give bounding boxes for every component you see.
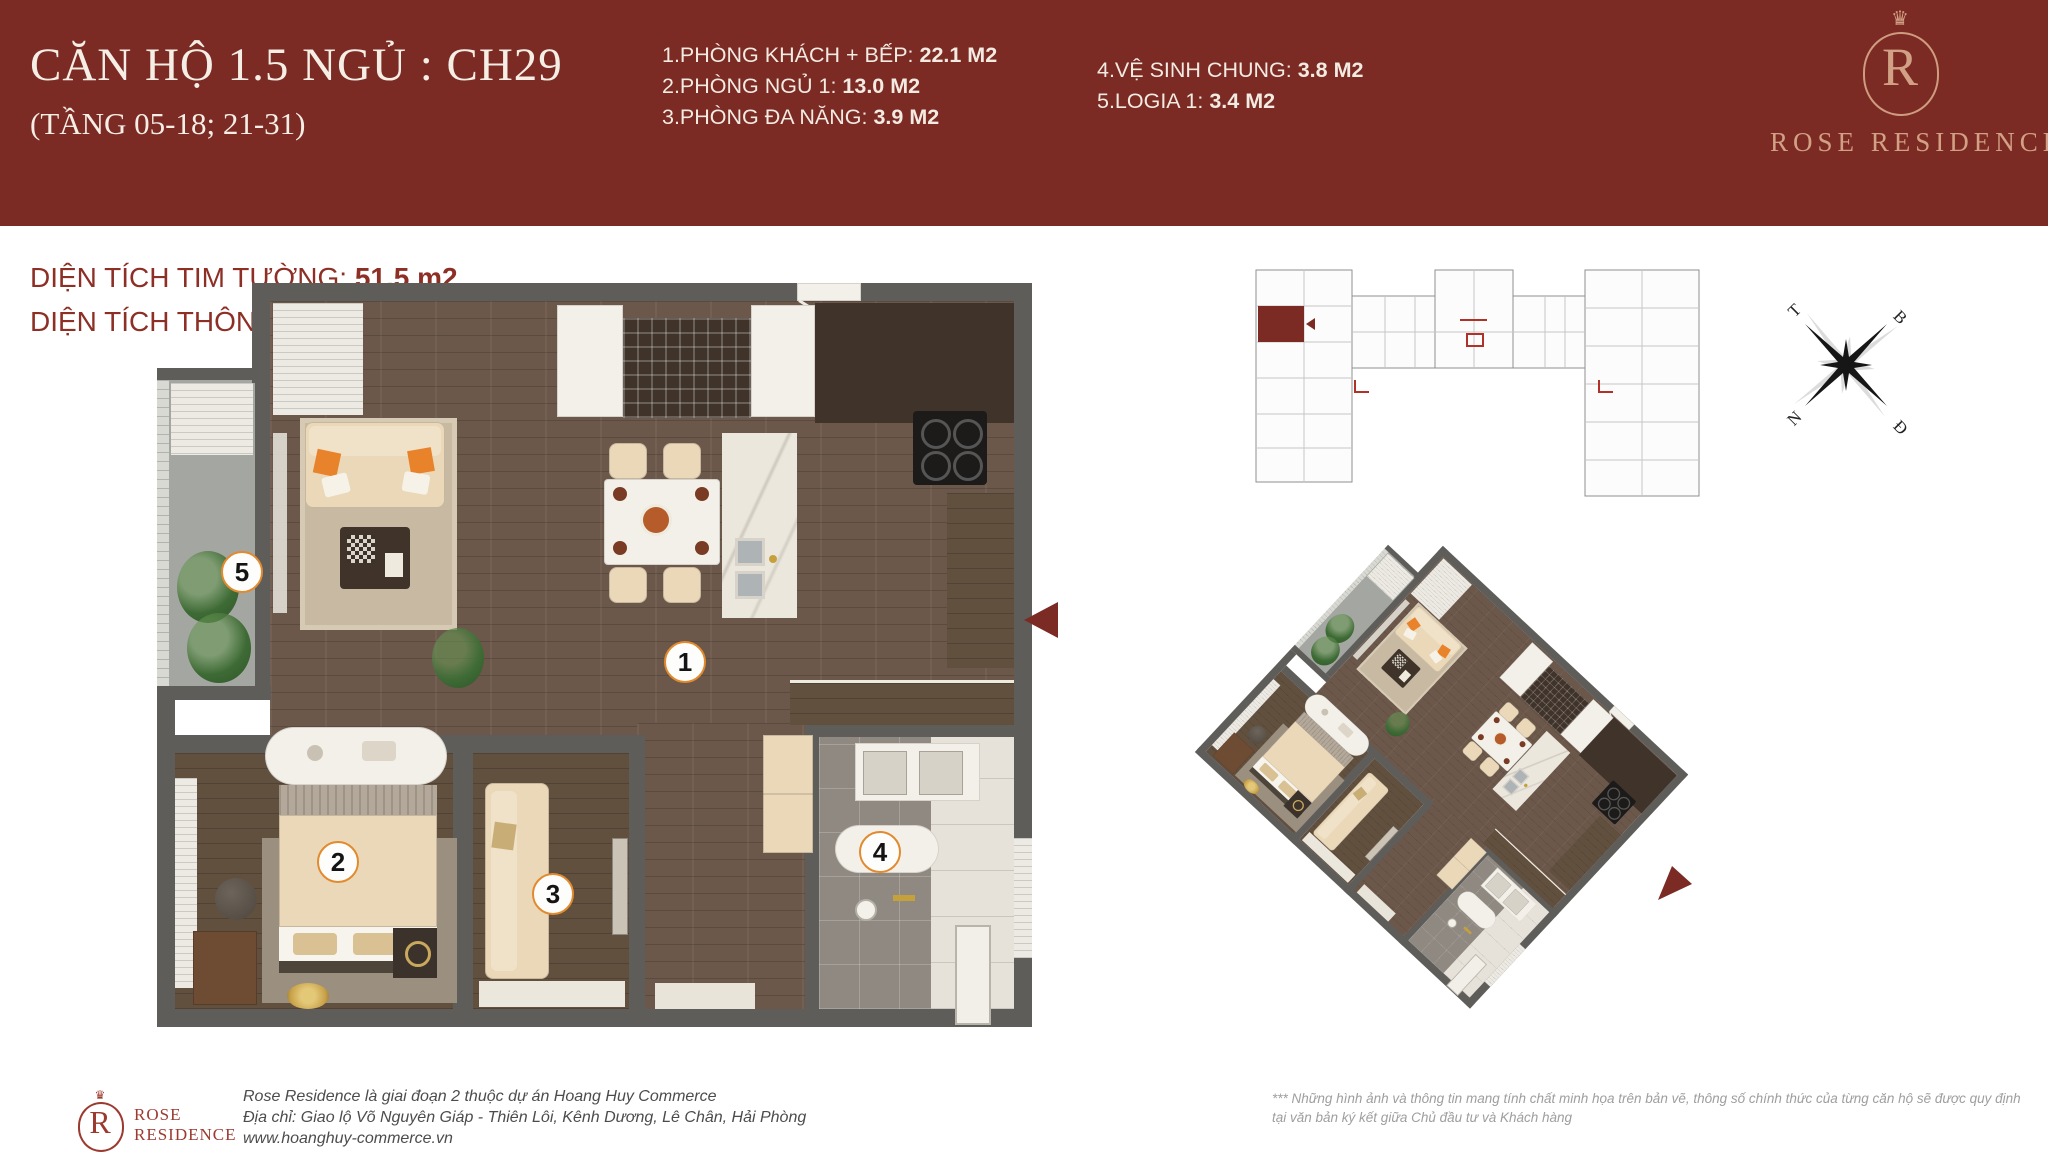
brand-logo: ♛ R ROSE RESIDENCE xyxy=(1770,14,2030,158)
wall-top xyxy=(252,283,1032,301)
monogram-letter: R xyxy=(1857,36,1943,98)
compass-rose: T B N Đ xyxy=(1780,285,1940,460)
room-area-value: 3.4 M2 xyxy=(1209,89,1275,113)
footer-logo: ♛ R xyxy=(76,1092,128,1150)
compass-star-icon xyxy=(1805,324,1887,406)
room-label: 1.PHÒNG KHÁCH + BẾP: xyxy=(662,43,919,67)
burner-1 xyxy=(921,419,951,449)
compass-label-south: N xyxy=(1783,407,1805,429)
monogram-letter: R xyxy=(76,1104,124,1141)
main-floorplan-inner: 1 2 3 4 5 xyxy=(157,283,1032,1040)
address-line-1: Rose Residence là giai đoạn 2 thuộc dự á… xyxy=(243,1086,806,1107)
building-keyplan xyxy=(1255,268,1700,498)
wall-left-lower xyxy=(157,700,175,1020)
bed-pillow-1 xyxy=(293,933,337,955)
plant-logia-2 xyxy=(187,613,251,683)
pouf xyxy=(215,878,257,920)
plate-2 xyxy=(695,487,709,501)
burner-4 xyxy=(953,451,983,481)
hall-cabinet xyxy=(763,735,813,853)
header-band: CĂN HỘ 1.5 NGỦ : CH29 (TẦNG 05-18; 21-31… xyxy=(0,0,2048,226)
sofa-pillow-orange-1 xyxy=(313,449,341,477)
brochure-page: CĂN HỘ 1.5 NGỦ : CH29 (TẦNG 05-18; 21-31… xyxy=(0,0,2048,1152)
room-number-3: 3 xyxy=(532,873,574,915)
plant-living xyxy=(432,628,484,688)
vanity-sink-2 xyxy=(919,751,963,795)
headboard xyxy=(279,785,437,815)
room-list-col1: 1.PHÒNG KHÁCH + BẾP: 22.1 M2 2.PHÒNG NGỦ… xyxy=(662,40,997,133)
compass-label-west: T xyxy=(1784,300,1805,321)
plate-3 xyxy=(613,541,627,555)
bath-niche xyxy=(955,925,991,1025)
dresser-decor-1 xyxy=(307,745,323,761)
room-number-2: 2 xyxy=(317,841,359,883)
kitchen-peninsula xyxy=(790,683,1014,725)
room-number-1: 1 xyxy=(664,641,706,683)
bedside-cabinet xyxy=(193,931,257,1005)
vanity-sink-1 xyxy=(863,751,907,795)
wine-rack xyxy=(623,318,751,418)
room-number-5: 5 xyxy=(221,551,263,593)
room-area-value: 13.0 M2 xyxy=(842,74,920,98)
disclaimer-line-2: tại văn bản ký kết giữa Chủ đầu tư và Kh… xyxy=(1272,1108,2021,1127)
logia-wall-inner xyxy=(255,380,270,686)
sink-basin-2 xyxy=(735,571,765,599)
sofa-pillow-white-2 xyxy=(401,471,430,495)
burner-3 xyxy=(921,451,951,481)
brand-monogram: ♛ R xyxy=(1857,14,1943,118)
sofa-pillow-orange-2 xyxy=(407,447,435,475)
page-title: CĂN HỘ 1.5 NGỦ : CH29 xyxy=(30,38,563,92)
room-line-3: 3.PHÒNG ĐA NĂNG: 3.9 M2 xyxy=(662,102,997,133)
room-label: 4.VỆ SINH CHUNG: xyxy=(1097,58,1298,82)
room-area-value: 22.1 M2 xyxy=(919,43,997,67)
cabinet-white-top xyxy=(557,305,623,417)
room-line-5: 5.LOGIA 1: 3.4 M2 xyxy=(1097,86,1363,117)
chessboard xyxy=(347,535,375,563)
sink-basin-1 xyxy=(735,538,765,566)
main-floorplan: 1 2 3 4 5 xyxy=(157,283,1032,1040)
footer-brand-name: ROSE RESIDENCE xyxy=(134,1105,237,1145)
disclaimer-line-1: *** Những hình ảnh và thông tin mang tín… xyxy=(1272,1089,2021,1108)
crown-icon: ♛ xyxy=(1857,6,1943,31)
address-line-3: www.hoanghuy-commerce.vn xyxy=(243,1128,806,1149)
room-label: 5.LOGIA 1: xyxy=(1097,89,1209,113)
wall-bottom xyxy=(157,1009,1032,1027)
fridge xyxy=(751,305,815,417)
unit-arrow-main xyxy=(1022,600,1060,642)
logia-wall-bottom xyxy=(157,686,271,700)
chair-2 xyxy=(663,443,701,479)
faucet xyxy=(769,555,777,563)
chair-1 xyxy=(609,443,647,479)
footer-brand-line1: ROSE xyxy=(134,1105,237,1125)
logia-railing xyxy=(157,380,169,686)
main-floorplan-inner: 1 2 3 4 5 xyxy=(1191,518,1688,1013)
platter xyxy=(643,507,669,533)
compass-label-north: B xyxy=(1890,306,1911,327)
room-line-4: 4.VỆ SINH CHUNG: 3.8 M2 xyxy=(1097,55,1363,86)
room-line-2: 2.PHÒNG NGỦ 1: 13.0 M2 xyxy=(662,71,997,102)
highlighted-unit xyxy=(1258,306,1304,342)
unit-arrow-rotated xyxy=(1652,862,1700,906)
counter-right-wood xyxy=(947,493,1014,668)
room-label: 2.PHÒNG NGỦ 1: xyxy=(662,74,842,98)
room-list-col2: 4.VỆ SINH CHUNG: 3.8 M2 5.LOGIA 1: 3.4 M… xyxy=(1097,55,1363,117)
bed-pillow-2 xyxy=(353,933,397,955)
wall-multi-hall xyxy=(629,735,645,1027)
paper-roll xyxy=(857,901,875,919)
wall-bath-top xyxy=(805,723,1032,737)
logia-shelf xyxy=(171,383,253,455)
brand-name: ROSE RESIDENCE xyxy=(1770,127,2030,158)
burner-2 xyxy=(953,419,983,449)
address-line-2: Địa chỉ: Giao lộ Võ Nguyên Giáp - Thiên … xyxy=(243,1107,806,1128)
arrow-downleft-icon xyxy=(1658,866,1692,900)
chest-ring xyxy=(405,941,431,967)
bedroom-dresser xyxy=(265,727,447,785)
plate-4 xyxy=(695,541,709,555)
room-area-value: 3.9 M2 xyxy=(873,105,939,129)
crown-icon: ♛ xyxy=(76,1088,124,1102)
footer-address: Rose Residence là giai đoạn 2 thuộc dự á… xyxy=(243,1086,806,1149)
plate-1 xyxy=(613,487,627,501)
wall-frame xyxy=(612,838,628,935)
sunburst-decor xyxy=(287,983,329,1009)
footer-disclaimer: *** Những hình ảnh và thông tin mang tín… xyxy=(1272,1089,2021,1127)
rotated-floorplan: 1 2 3 4 5 xyxy=(1191,518,1688,1013)
closet-top-left xyxy=(273,303,363,415)
floor-range: (TẦNG 05-18; 21-31) xyxy=(30,106,306,142)
arrow-left-icon xyxy=(1024,602,1058,638)
bed xyxy=(279,815,437,927)
footer-brand-line2: RESIDENCE xyxy=(134,1125,237,1145)
multi-sofa-pillow xyxy=(491,822,516,851)
compass-label-east: Đ xyxy=(1890,416,1912,438)
bath-window xyxy=(1014,838,1032,958)
logia-wall-top xyxy=(157,368,269,380)
shower-fitting xyxy=(893,895,915,901)
multi-mat xyxy=(479,981,625,1007)
multi-sofa-seat xyxy=(491,791,517,971)
room-line-1: 1.PHÒNG KHÁCH + BẾP: 22.1 M2 xyxy=(662,40,997,71)
room-area-value: 3.8 M2 xyxy=(1298,58,1364,82)
dresser-decor-2 xyxy=(362,741,396,761)
entry-door-gap xyxy=(797,283,861,301)
room-number-4: 4 xyxy=(859,831,901,873)
coffee-table-books xyxy=(385,553,403,577)
curtain-strip xyxy=(273,433,287,613)
chair-3 xyxy=(609,567,647,603)
hall-mat xyxy=(655,983,755,1009)
room-label: 3.PHÒNG ĐA NĂNG: xyxy=(662,105,873,129)
kitchen-cabinets-dark xyxy=(815,303,1014,423)
chair-4 xyxy=(663,567,701,603)
